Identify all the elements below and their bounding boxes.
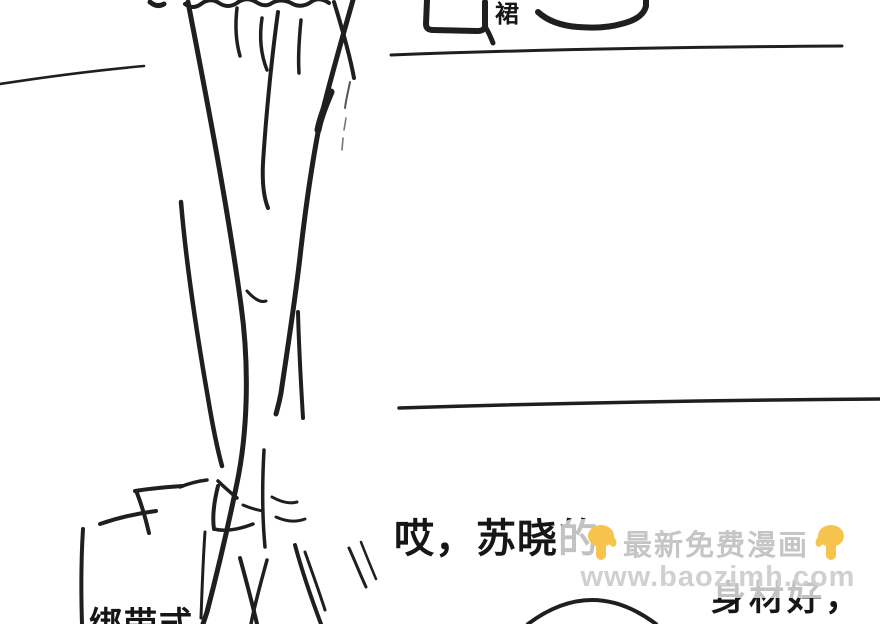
comic-page: 裙 哎，苏晓的 衣服多着呢。 绑带式 小高跟 鞋 身材好， 穿什么 都好看 最新… [0,0,880,624]
bubble-fragment-right [538,0,646,28]
skirt-label: 裙 [495,0,519,29]
point-down-icon [815,523,847,563]
panel-line-top [391,46,842,55]
watermark-title: 最新免费漫画 [623,522,809,564]
skirt-edge-left [150,2,164,6]
panel-line-mid [399,399,880,408]
right-leg-outline [276,0,353,414]
watermark-url: www.baozimh.com [561,561,875,594]
label-divider [81,529,83,624]
left-calf-line [181,202,222,466]
right-calf-line [298,312,303,418]
ground-line-left [0,66,144,84]
shoe-note-line: 绑带式 [89,606,194,624]
watermark-title-row: 最新免费漫画 [559,523,873,563]
skirt-hem [185,0,329,7]
shoe-note-text: 绑带式 小高跟 鞋 [89,534,194,624]
point-down-icon [585,523,617,563]
watermark-pill: 最新免费漫画 www.baozimh.com [559,519,873,598]
bubble-fragment-left [426,0,485,31]
